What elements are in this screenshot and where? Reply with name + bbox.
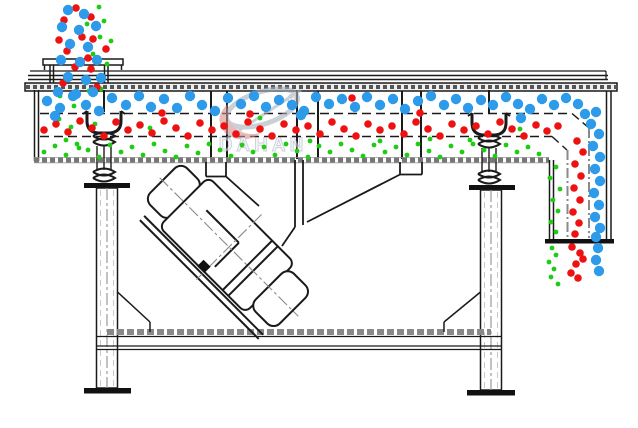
particles-large xyxy=(42,5,605,276)
particle-large xyxy=(588,141,598,151)
particle-small xyxy=(295,149,300,154)
particle-large xyxy=(476,95,486,105)
particle-medium xyxy=(348,94,356,102)
particle-small xyxy=(98,35,103,40)
particle-large xyxy=(121,100,131,110)
particle-small xyxy=(262,145,267,150)
particle-medium xyxy=(89,35,97,43)
particle-medium xyxy=(124,126,132,134)
particle-medium xyxy=(268,132,276,140)
particle-medium xyxy=(148,129,156,137)
particle-medium xyxy=(520,132,528,140)
particle-large xyxy=(451,94,461,104)
particle-small xyxy=(308,139,313,144)
diagram-canvas: R DAHAN xyxy=(0,0,638,428)
particle-medium xyxy=(569,208,577,216)
particle-medium xyxy=(364,120,372,128)
leg-left xyxy=(84,188,131,394)
particle-small xyxy=(108,143,113,148)
particle-small xyxy=(556,282,561,287)
particle-small xyxy=(185,144,190,149)
particle-medium xyxy=(196,119,204,127)
particle-large xyxy=(92,55,102,65)
particle-large xyxy=(525,104,535,114)
particle-small xyxy=(554,165,559,170)
particle-small xyxy=(552,267,557,272)
particle-large xyxy=(74,25,84,35)
particle-large xyxy=(81,100,91,110)
particle-large xyxy=(75,57,85,67)
particle-large xyxy=(463,103,473,113)
particle-medium xyxy=(448,120,456,128)
particle-large xyxy=(81,75,91,85)
particle-large xyxy=(595,223,605,233)
particle-large xyxy=(501,92,511,102)
particle-large xyxy=(593,243,603,253)
particle-small xyxy=(339,142,344,147)
particle-small xyxy=(547,260,552,265)
particle-medium xyxy=(340,125,348,133)
particle-small xyxy=(372,143,377,148)
particle-medium xyxy=(543,127,551,135)
particle-medium xyxy=(280,120,288,128)
particle-small xyxy=(558,187,563,192)
particle-large xyxy=(50,111,60,121)
particle-large xyxy=(426,91,436,101)
particle-large xyxy=(590,164,600,174)
particle-large xyxy=(594,200,604,210)
particle-small xyxy=(405,153,410,158)
particle-small xyxy=(416,142,421,147)
particle-small xyxy=(471,142,476,147)
particle-medium xyxy=(577,172,585,180)
particle-large xyxy=(94,106,104,116)
particle-large xyxy=(591,232,601,242)
particle-large xyxy=(146,102,156,112)
particle-large xyxy=(83,42,93,52)
particle-medium xyxy=(570,184,578,192)
particle-medium xyxy=(574,274,582,282)
particle-small xyxy=(556,209,561,214)
particle-medium xyxy=(568,243,576,251)
particle-small xyxy=(152,142,157,147)
particle-large xyxy=(56,55,66,65)
particle-large xyxy=(561,93,571,103)
particle-small xyxy=(317,144,322,149)
particle-small xyxy=(504,143,509,148)
particle-large xyxy=(388,94,398,104)
particle-small xyxy=(130,145,135,150)
particle-large xyxy=(107,93,117,103)
particle-small xyxy=(97,5,102,10)
particle-small xyxy=(119,150,124,155)
particle-medium xyxy=(88,124,96,132)
particle-medium xyxy=(508,125,516,133)
particle-small xyxy=(554,230,559,235)
top-cover xyxy=(25,71,617,91)
particle-large xyxy=(337,94,347,104)
particle-small xyxy=(240,143,245,148)
particle-medium xyxy=(316,130,324,138)
particle-large xyxy=(590,212,600,222)
particle-small xyxy=(460,150,465,155)
particle-medium xyxy=(424,125,432,133)
particle-medium xyxy=(412,118,420,126)
particle-large xyxy=(197,100,207,110)
particle-large xyxy=(210,106,220,116)
particle-large xyxy=(595,152,605,162)
particle-medium xyxy=(572,260,580,268)
particle-large xyxy=(439,100,449,110)
particle-large xyxy=(375,100,385,110)
particle-small xyxy=(72,104,77,109)
particle-small xyxy=(350,148,355,153)
particle-large xyxy=(223,93,233,103)
particle-medium xyxy=(400,130,408,138)
particle-large xyxy=(591,255,601,265)
particle-small xyxy=(141,153,146,158)
particle-medium xyxy=(136,121,144,129)
particle-medium xyxy=(84,54,92,62)
particle-medium xyxy=(388,122,396,130)
particle-large xyxy=(63,5,73,15)
leg-right xyxy=(467,190,515,396)
particle-large xyxy=(134,91,144,101)
particle-small xyxy=(273,153,278,158)
particle-small xyxy=(102,19,107,24)
particle-large xyxy=(516,113,526,123)
particle-small xyxy=(515,150,520,155)
particle-large xyxy=(413,96,423,106)
particle-large xyxy=(324,99,334,109)
particle-small xyxy=(438,155,443,160)
particle-large xyxy=(91,21,101,31)
particle-medium xyxy=(208,126,216,134)
particle-small xyxy=(383,150,388,155)
particle-small xyxy=(361,154,366,159)
particle-large xyxy=(287,100,297,110)
particle-medium xyxy=(554,122,562,130)
particle-medium xyxy=(256,125,264,133)
particle-small xyxy=(493,154,498,159)
particle-large xyxy=(513,99,523,109)
particle-small xyxy=(229,154,234,159)
particle-large xyxy=(274,95,284,105)
particle-medium xyxy=(232,130,240,138)
particle-large xyxy=(549,100,559,110)
particle-large xyxy=(172,103,182,113)
particle-small xyxy=(427,149,432,154)
particle-small xyxy=(64,153,69,158)
particle-medium xyxy=(496,118,504,126)
particle-large xyxy=(53,87,63,97)
particle-medium xyxy=(87,65,95,73)
particle-large xyxy=(236,99,246,109)
particle-small xyxy=(548,176,553,181)
particle-small xyxy=(42,150,47,155)
particle-small xyxy=(328,150,333,155)
particle-small xyxy=(251,150,256,155)
particle-large xyxy=(595,176,605,186)
particle-small xyxy=(85,22,90,27)
particle-small xyxy=(526,145,531,150)
particle-large xyxy=(586,119,596,129)
particle-medium xyxy=(160,117,168,125)
particle-small xyxy=(207,142,212,147)
particle-small xyxy=(163,149,168,154)
particle-small xyxy=(284,142,289,147)
particle-medium xyxy=(304,122,312,130)
particle-medium xyxy=(579,255,587,263)
particle-small xyxy=(86,148,91,153)
particle-large xyxy=(594,129,604,139)
particle-large xyxy=(591,107,601,117)
particle-large xyxy=(362,92,372,102)
particle-small xyxy=(428,137,433,142)
particle-medium xyxy=(436,132,444,140)
particle-small xyxy=(105,62,110,67)
particle-medium xyxy=(100,132,108,140)
particle-medium xyxy=(573,137,581,145)
particle-small xyxy=(449,144,454,149)
particle-small xyxy=(549,275,554,280)
particle-small xyxy=(550,246,555,251)
particle-medium xyxy=(55,36,63,44)
particle-small xyxy=(75,142,80,147)
particle-medium xyxy=(158,109,166,117)
particle-small xyxy=(53,144,58,149)
particle-large xyxy=(159,94,169,104)
particle-medium xyxy=(112,118,120,126)
particle-small xyxy=(218,148,223,153)
particle-medium xyxy=(244,118,252,126)
particle-medium xyxy=(567,269,575,277)
particle-small xyxy=(109,39,114,44)
particle-large xyxy=(65,39,75,49)
particle-medium xyxy=(220,122,228,130)
particle-large xyxy=(249,91,259,101)
particle-medium xyxy=(376,126,384,134)
particle-large xyxy=(63,72,73,82)
particle-large xyxy=(296,110,306,120)
particle-medium xyxy=(576,196,584,204)
particle-small xyxy=(394,145,399,150)
particle-medium xyxy=(40,126,48,134)
particle-medium xyxy=(416,109,424,117)
particle-large xyxy=(589,188,599,198)
particle-medium xyxy=(571,160,579,168)
particle-medium xyxy=(328,118,336,126)
particle-small xyxy=(258,116,263,121)
particle-medium xyxy=(292,126,300,134)
particle-large xyxy=(96,73,106,83)
particle-large xyxy=(580,109,590,119)
particle-medium xyxy=(579,148,587,156)
particle-small xyxy=(196,151,201,156)
particle-small xyxy=(549,220,554,225)
particle-large xyxy=(311,92,321,102)
particle-small xyxy=(378,139,383,144)
particle-large xyxy=(594,266,604,276)
particle-medium xyxy=(484,130,492,138)
particle-medium xyxy=(52,120,60,128)
particle-small xyxy=(64,138,69,143)
particle-large xyxy=(261,102,271,112)
particle-small xyxy=(174,155,179,160)
vibration-motor xyxy=(127,145,331,349)
particle-medium xyxy=(575,219,583,227)
particle-medium xyxy=(72,4,80,12)
particle-large xyxy=(57,22,67,32)
particle-small xyxy=(97,155,102,160)
particle-medium xyxy=(532,121,540,129)
particle-medium xyxy=(571,230,579,238)
particle-small xyxy=(551,198,556,203)
particle-large xyxy=(88,87,98,97)
particle-small xyxy=(306,155,311,160)
particle-small xyxy=(468,138,473,143)
particle-large xyxy=(400,104,410,114)
particle-small xyxy=(518,127,523,132)
particle-large xyxy=(488,100,498,110)
particle-medium xyxy=(472,122,480,130)
vibrating-screen-diagram: R DAHAN xyxy=(0,0,638,428)
particle-large xyxy=(42,96,52,106)
particle-large xyxy=(68,91,78,101)
particle-medium xyxy=(102,45,110,53)
particle-medium xyxy=(172,124,180,132)
particle-medium xyxy=(246,110,254,118)
watermark: R DAHAN xyxy=(219,81,308,156)
particle-medium xyxy=(460,126,468,134)
particle-large xyxy=(573,99,583,109)
particle-small xyxy=(482,148,487,153)
particle-large xyxy=(185,91,195,101)
particle-small xyxy=(554,253,559,258)
particle-large xyxy=(537,94,547,104)
particle-medium xyxy=(184,132,192,140)
particle-medium xyxy=(64,128,72,136)
particle-small xyxy=(537,152,542,157)
particle-medium xyxy=(352,132,360,140)
particle-large xyxy=(350,102,360,112)
particle-large xyxy=(79,9,89,19)
cross-beam xyxy=(96,332,502,350)
particle-medium xyxy=(76,117,84,125)
